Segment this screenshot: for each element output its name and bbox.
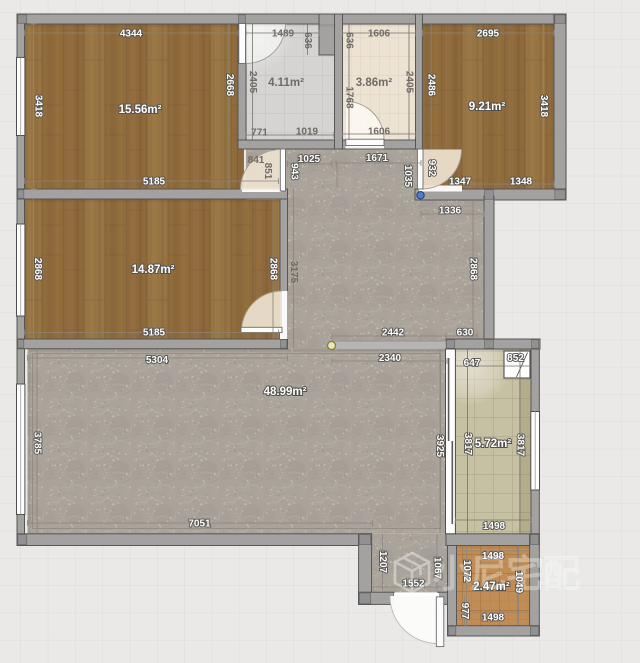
svg-text:1498: 1498 bbox=[482, 613, 505, 624]
svg-text:小尼宅配: 小尼宅配 bbox=[433, 553, 581, 596]
svg-text:2405: 2405 bbox=[247, 71, 258, 94]
svg-text:1347: 1347 bbox=[449, 177, 472, 188]
svg-text:5.72m²: 5.72m² bbox=[475, 438, 512, 450]
svg-text:7051: 7051 bbox=[188, 519, 211, 530]
svg-text:5304: 5304 bbox=[146, 355, 169, 366]
svg-text:3.86m²: 3.86m² bbox=[356, 77, 393, 89]
svg-text:636: 636 bbox=[344, 32, 355, 49]
svg-text:2442: 2442 bbox=[382, 328, 405, 339]
svg-text:3418: 3418 bbox=[538, 95, 549, 118]
svg-text:14.87m²: 14.87m² bbox=[132, 264, 175, 276]
svg-text:15.56m²: 15.56m² bbox=[119, 104, 162, 116]
svg-text:4344: 4344 bbox=[120, 29, 143, 40]
svg-text:851: 851 bbox=[262, 163, 273, 180]
svg-text:3925: 3925 bbox=[434, 435, 445, 458]
svg-text:3785: 3785 bbox=[32, 432, 43, 455]
svg-text:2868: 2868 bbox=[32, 258, 43, 281]
svg-text:1025: 1025 bbox=[298, 154, 321, 165]
svg-text:943: 943 bbox=[289, 163, 300, 180]
svg-text:1671: 1671 bbox=[366, 153, 389, 164]
svg-text:1348: 1348 bbox=[510, 177, 533, 188]
svg-text:5185: 5185 bbox=[143, 177, 166, 188]
svg-text:1606: 1606 bbox=[368, 29, 391, 40]
svg-text:3418: 3418 bbox=[33, 95, 44, 118]
svg-text:630: 630 bbox=[457, 328, 474, 339]
svg-text:1019: 1019 bbox=[296, 127, 319, 138]
svg-text:636: 636 bbox=[302, 32, 313, 49]
svg-text:3175: 3175 bbox=[288, 261, 299, 284]
svg-text:1336: 1336 bbox=[439, 206, 462, 217]
svg-text:1207: 1207 bbox=[377, 551, 388, 574]
svg-text:771: 771 bbox=[251, 128, 268, 139]
svg-text:2868: 2868 bbox=[268, 258, 279, 281]
svg-text:1498: 1498 bbox=[483, 521, 506, 532]
svg-text:2486: 2486 bbox=[426, 74, 437, 97]
svg-text:48.99m²: 48.99m² bbox=[264, 386, 307, 398]
svg-text:3817: 3817 bbox=[515, 434, 526, 457]
svg-text:1606: 1606 bbox=[368, 127, 391, 138]
svg-text:977: 977 bbox=[459, 603, 470, 620]
svg-text:2405: 2405 bbox=[404, 71, 415, 94]
svg-text:852: 852 bbox=[507, 353, 524, 364]
svg-text:2668: 2668 bbox=[224, 74, 235, 97]
svg-text:2868: 2868 bbox=[468, 258, 479, 281]
svg-text:1035: 1035 bbox=[402, 165, 413, 188]
svg-text:2695: 2695 bbox=[477, 29, 500, 40]
svg-text:9.21m²: 9.21m² bbox=[469, 101, 506, 113]
svg-text:2340: 2340 bbox=[379, 353, 402, 364]
svg-text:647: 647 bbox=[464, 358, 481, 369]
svg-text:4.11m²: 4.11m² bbox=[268, 77, 304, 89]
svg-text:932: 932 bbox=[426, 160, 437, 177]
svg-text:5185: 5185 bbox=[143, 328, 166, 339]
svg-text:1489: 1489 bbox=[272, 29, 295, 40]
svg-text:3817: 3817 bbox=[462, 433, 473, 456]
svg-text:1768: 1768 bbox=[344, 86, 355, 109]
